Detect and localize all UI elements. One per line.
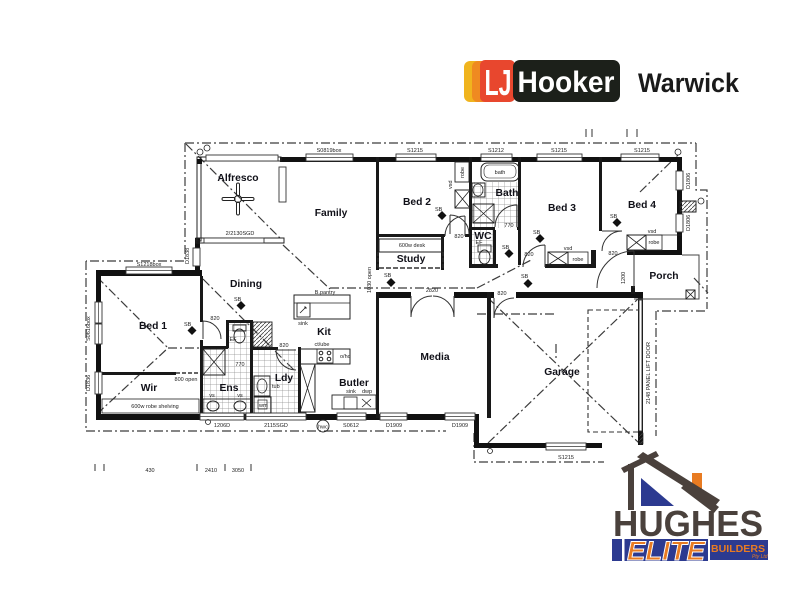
svg-text:Pty Ltd: Pty Ltd [752, 554, 768, 560]
svg-text:Bath: Bath [496, 188, 519, 199]
svg-text:D1806: D1806 [686, 173, 692, 189]
svg-text:820: 820 [454, 234, 463, 240]
svg-text:Family: Family [315, 208, 348, 219]
svg-text:D1836: D1836 [86, 375, 92, 391]
svg-text:820: 820 [524, 252, 533, 258]
svg-text:Bed 2: Bed 2 [403, 197, 431, 208]
svg-text:ct/ube: ct/ube [315, 342, 330, 348]
svg-text:Porch: Porch [649, 271, 678, 282]
svg-text:SB: SB [184, 322, 192, 328]
svg-text:B.pantry: B.pantry [315, 290, 336, 296]
svg-text:D1909: D1909 [386, 423, 402, 429]
svg-text:robe: robe [460, 167, 466, 178]
svg-text:D1806: D1806 [686, 215, 692, 231]
svg-text:2820: 2820 [426, 288, 438, 294]
svg-text:vsd: vsd [448, 180, 454, 189]
svg-text:SB: SB [610, 214, 618, 220]
svg-text:SB: SB [435, 207, 443, 213]
svg-text:SB: SB [521, 274, 529, 280]
svg-text:1200: 1200 [621, 272, 627, 284]
svg-text:820: 820 [497, 291, 506, 297]
svg-text:770: 770 [504, 223, 513, 229]
svg-text:Study: Study [397, 254, 426, 265]
svg-text:Butler: Butler [339, 378, 369, 389]
svg-text:S0819box: S0819box [317, 148, 342, 154]
svg-text:2115SGD: 2115SGD [264, 423, 288, 429]
svg-text:Bed 4: Bed 4 [628, 200, 656, 211]
svg-text:Hooker: Hooker [518, 66, 615, 99]
svg-text:Dining: Dining [230, 279, 262, 290]
svg-text:sink: sink [298, 321, 308, 327]
svg-text:LJ: LJ [485, 62, 512, 103]
svg-text:820: 820 [279, 343, 288, 349]
svg-text:600w robe shelving: 600w robe shelving [131, 404, 178, 410]
svg-text:o/hc: o/hc [340, 354, 351, 360]
svg-text:S1215: S1215 [558, 455, 574, 461]
svg-text:S1212: S1212 [488, 148, 504, 154]
svg-text:S1215: S1215 [407, 148, 423, 154]
svg-text:D1909: D1909 [452, 423, 468, 429]
svg-text:Media: Media [420, 352, 449, 363]
svg-text:820: 820 [210, 316, 219, 322]
svg-text:hwc: hwc [318, 425, 328, 431]
svg-text:dwp: dwp [362, 389, 372, 395]
svg-text:Ldy: Ldy [275, 373, 294, 384]
svg-text:robe: robe [572, 257, 583, 263]
svg-text:ELITE: ELITE [627, 536, 706, 566]
svg-text:bath: bath [495, 170, 506, 176]
svg-text:EF: EF [475, 240, 483, 246]
svg-text:robe: robe [648, 240, 659, 246]
svg-text:1206D: 1206D [214, 423, 230, 429]
svg-text:3050: 3050 [232, 468, 244, 474]
svg-text:800 open: 800 open [175, 377, 198, 383]
svg-text:Bed 3: Bed 3 [548, 203, 576, 214]
svg-text:S0616box: S0616box [86, 316, 92, 341]
svg-text:vsd: vsd [564, 246, 573, 252]
svg-text:S1215: S1215 [551, 148, 567, 154]
svg-text:820: 820 [608, 251, 617, 257]
svg-text:Alfresco: Alfresco [217, 173, 258, 184]
svg-text:Ens: Ens [220, 383, 239, 394]
svg-text:vs: vs [209, 393, 215, 399]
svg-text:SB: SB [234, 297, 242, 303]
svg-text:tub: tub [272, 384, 280, 390]
svg-text:430: 430 [145, 468, 154, 474]
svg-text:D1838: D1838 [185, 248, 191, 264]
svg-text:Garage: Garage [544, 367, 580, 378]
svg-text:2148 PANEL LIFT DOOR: 2148 PANEL LIFT DOOR [646, 342, 652, 404]
svg-text:600w desk: 600w desk [399, 243, 426, 249]
svg-text:SB: SB [502, 245, 510, 251]
svg-text:2/2130SGD: 2/2130SGD [226, 231, 255, 237]
svg-text:Bed 1: Bed 1 [139, 321, 167, 332]
svg-text:SB: SB [384, 273, 392, 279]
svg-text:EF: EF [229, 337, 237, 343]
svg-text:S1218box: S1218box [137, 262, 162, 268]
svg-text:770: 770 [235, 362, 244, 368]
svg-text:S1215: S1215 [634, 148, 650, 154]
svg-text:SB: SB [533, 230, 541, 236]
svg-text:vs: vs [237, 393, 243, 399]
svg-text:S0612: S0612 [343, 423, 359, 429]
svg-text:Warwick: Warwick [638, 68, 740, 98]
svg-text:Kit: Kit [317, 327, 331, 338]
svg-text:sink: sink [346, 389, 356, 395]
svg-text:1030 open: 1030 open [367, 267, 373, 293]
svg-text:vsd: vsd [648, 229, 657, 235]
svg-text:Wir: Wir [141, 383, 158, 394]
svg-text:2410: 2410 [205, 468, 217, 474]
svg-text:wm: wm [258, 403, 268, 409]
